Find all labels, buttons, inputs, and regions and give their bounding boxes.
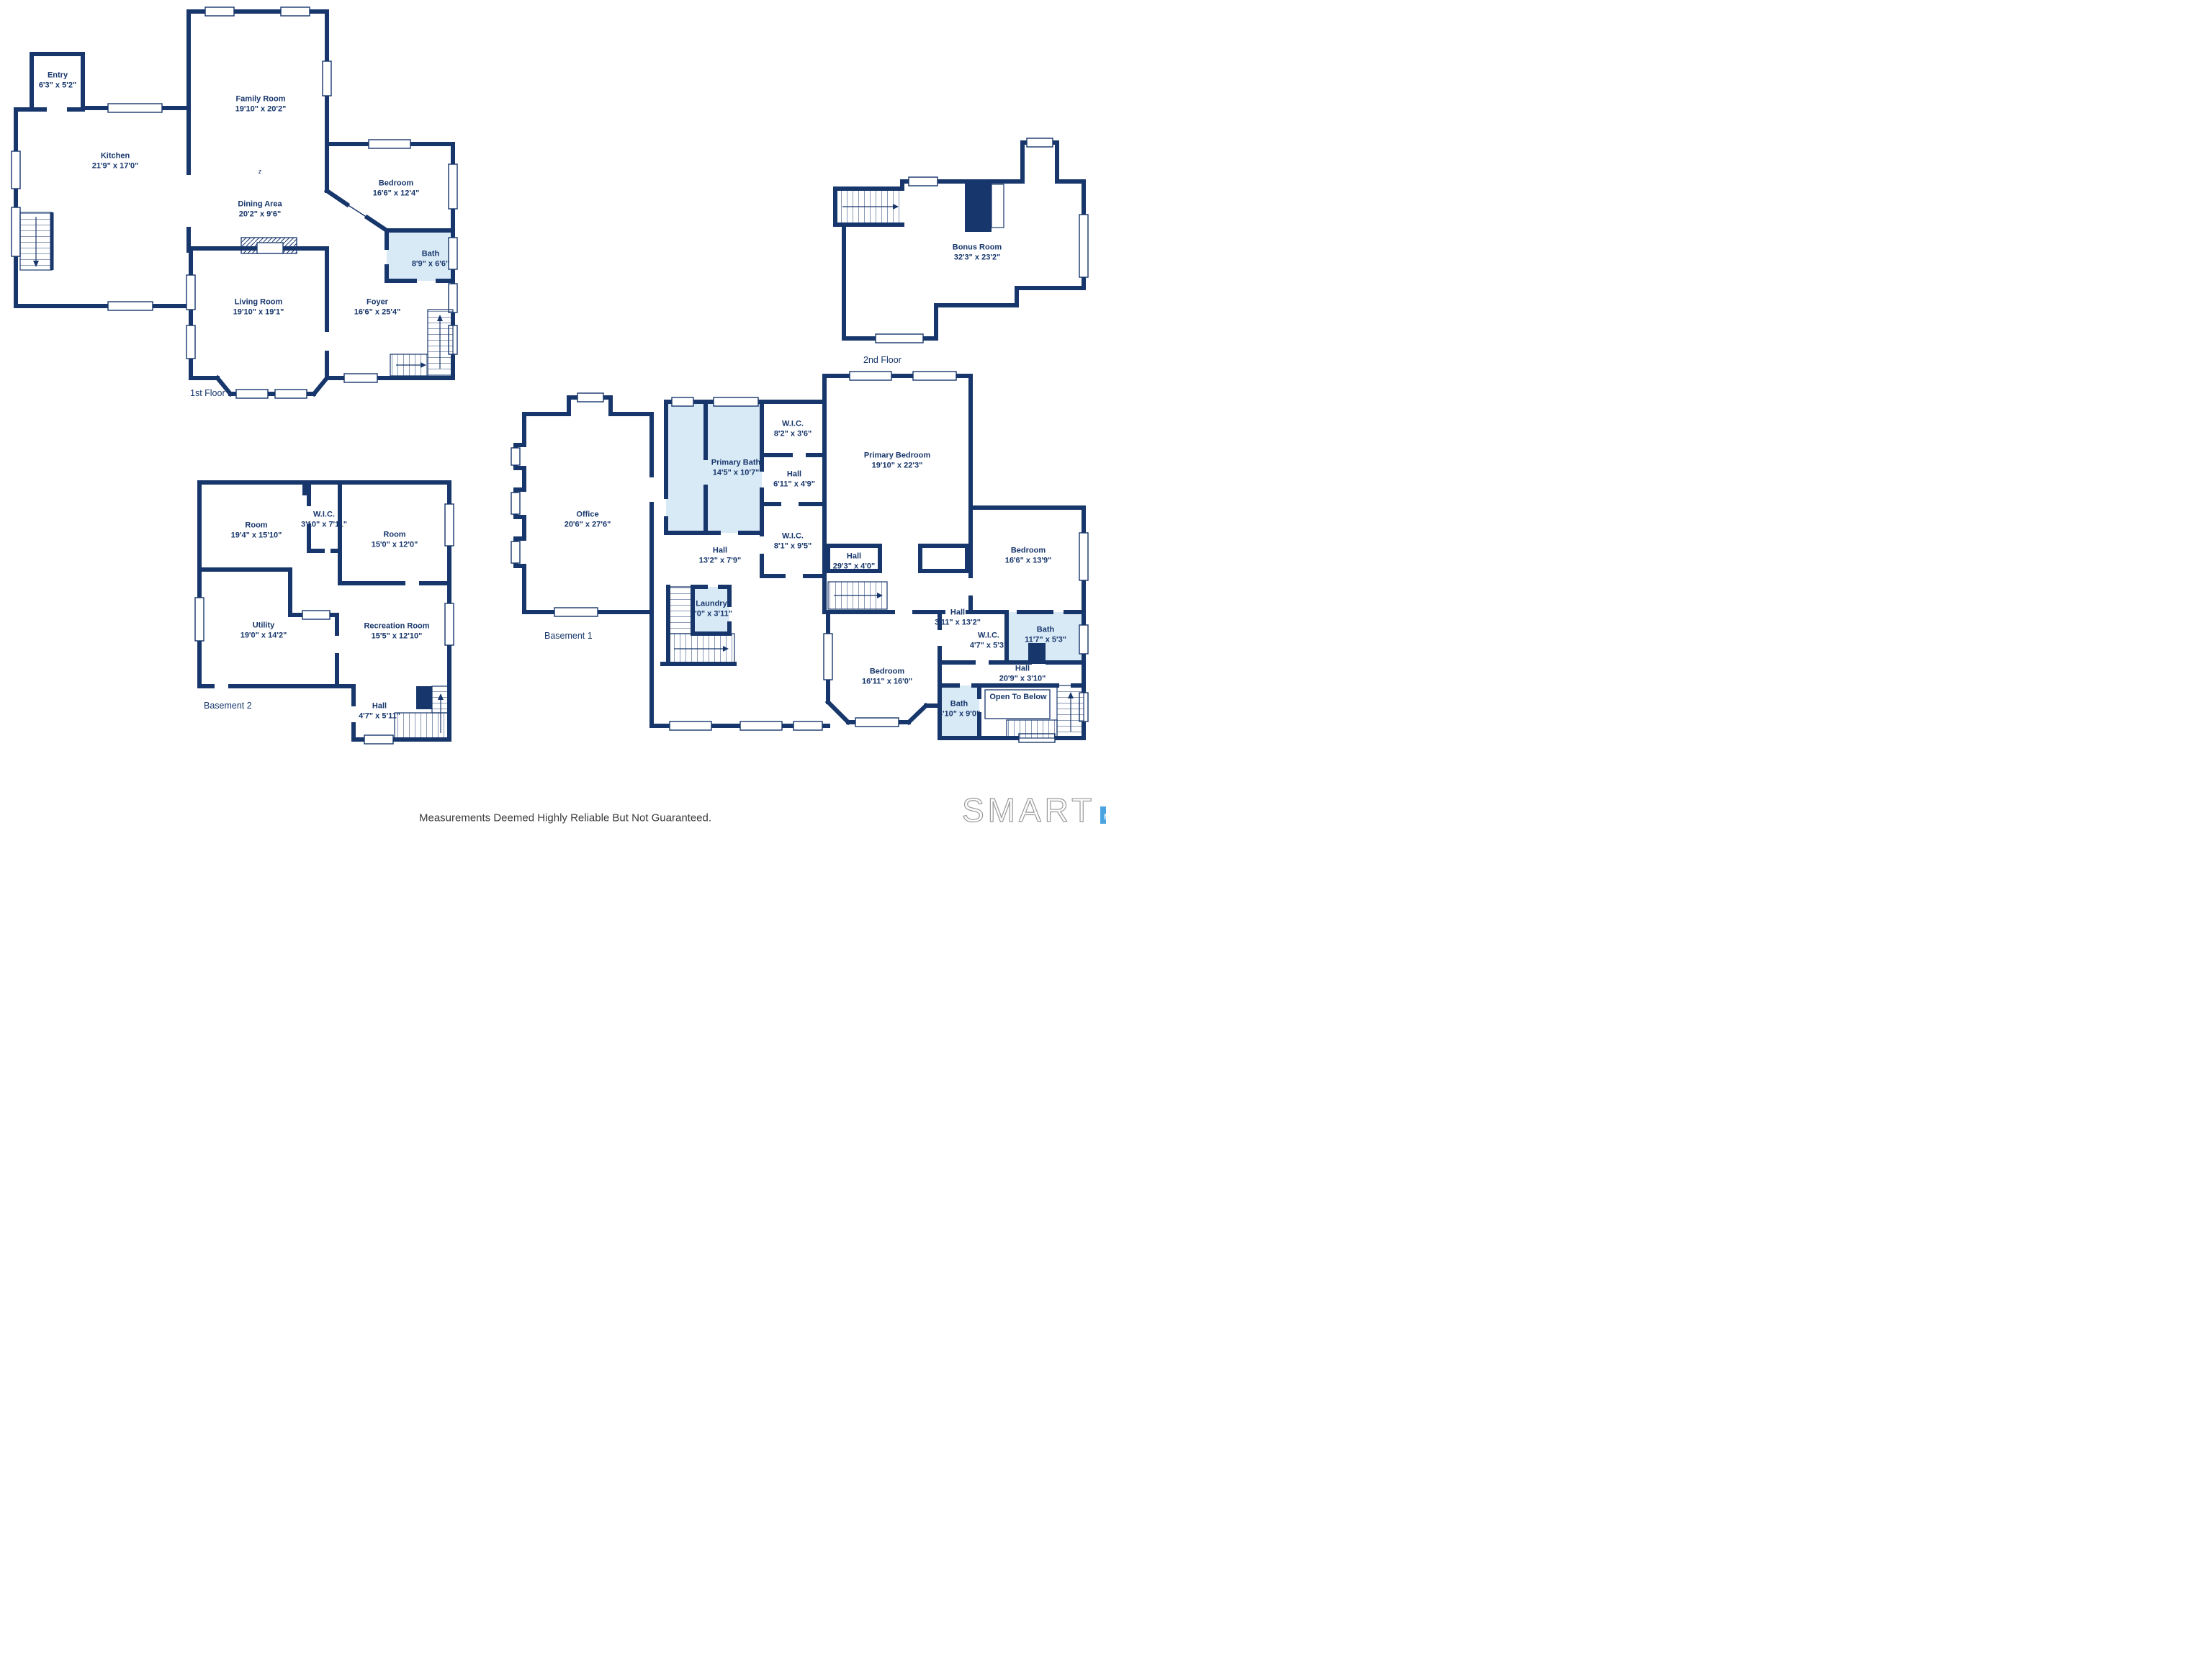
room-label-bath-11-7: Bath11'7" x 5'3" xyxy=(1025,625,1066,646)
room-label-office: Office20'6" x 27'6" xyxy=(565,510,611,531)
chimney xyxy=(965,180,992,232)
room-label-room-19-4: Room19'4" x 15'10" xyxy=(231,521,282,541)
caption-2nd-floor: 2nd Floor xyxy=(863,355,902,365)
room-label-wic-4-7: W.I.C.4'7" x 5'3" xyxy=(970,631,1007,652)
room-label-wic-b2: W.I.C.3'10" x 7'11" xyxy=(301,510,347,531)
room-label-laundry: Laundry5'0" x 3'11" xyxy=(691,599,732,620)
room-label-bath-4-10: Bath4'10" x 9'0" xyxy=(938,699,980,720)
room-label-hall-3-11: Hall3'11" x 13'2" xyxy=(935,608,981,629)
room-label-open-to-below: Open To Below xyxy=(989,692,1046,702)
room-label-primary-bath: Primary Bath14'5" x 10'7" xyxy=(711,458,760,479)
caption-1st-floor: 1st Floor xyxy=(190,388,225,398)
second-floor-plan xyxy=(835,138,1088,343)
room-label-primary-bedroom: Primary Bedroom19'10" x 22'3" xyxy=(864,451,930,472)
room-label-bonus-room: Bonus Room32'3" x 23'2" xyxy=(953,243,1002,264)
room-label-bath-1f: Bath8'9" x 6'6" xyxy=(412,249,449,270)
room-label-wic-8-1: W.I.C.8'1" x 9'5" xyxy=(774,531,811,552)
window-glyphs-floor1 xyxy=(12,7,457,398)
caption-basement-1: Basement 1 xyxy=(544,631,593,641)
room-label-bedroom-16-11: Bedroom16'11" x 16'0" xyxy=(862,667,912,688)
room-label-living-room: Living Room19'10" x 19'1" xyxy=(233,297,284,318)
room-label-utility: Utility19'0" x 14'2" xyxy=(240,621,287,642)
room-label-bedroom-1f: Bedroom16'6" x 12'4" xyxy=(373,179,420,199)
room-label-kitchen: Kitchen21'9" x 17'0" xyxy=(92,151,139,172)
first-floor-plan: z xyxy=(12,7,457,398)
room-label-wic-top: W.I.C.8'2" x 3'6" xyxy=(774,419,811,440)
room-label-hall-b2: Hall4'7" x 5'11" xyxy=(359,701,400,722)
svg-text:z: z xyxy=(258,168,262,175)
room-label-hall-20-9: Hall20'9" x 3'10" xyxy=(999,664,1046,685)
room-label-hall-6-11: Hall6'11" x 4'9" xyxy=(773,469,815,490)
mls-bars: M L S xyxy=(1100,792,1106,825)
room-label-family-room: Family Room19'10" x 20'2" xyxy=(235,94,287,115)
room-label-bedroom-16-6: Bedroom16'6" x 13'9" xyxy=(1005,546,1052,567)
room-label-entry: Entry6'3" x 5'2" xyxy=(39,71,76,91)
measurements-disclaimer: Measurements Deemed Highly Reliable But … xyxy=(419,812,711,824)
floorplan-page: z xyxy=(0,0,1106,829)
room-label-room-15-0: Room15'0" x 12'0" xyxy=(372,530,418,551)
mls-bar-m: M xyxy=(1100,806,1106,824)
smart-wordmark: SMART xyxy=(962,795,1095,825)
room-label-foyer: Foyer16'6" x 25'4" xyxy=(354,297,401,318)
room-label-hall-13-2: Hall13'2" x 7'9" xyxy=(699,546,741,567)
room-label-dining-area: Dining Area20'2" x 9'6" xyxy=(238,199,282,220)
room-label-recreation-room: Recreation Room15'5" x 12'10" xyxy=(364,621,429,642)
smart-mls-logo: SMART M L S xyxy=(962,788,1099,825)
caption-basement-2: Basement 2 xyxy=(204,701,252,711)
room-label-hall-29-3: Hall29'3" x 4'0" xyxy=(833,552,875,572)
